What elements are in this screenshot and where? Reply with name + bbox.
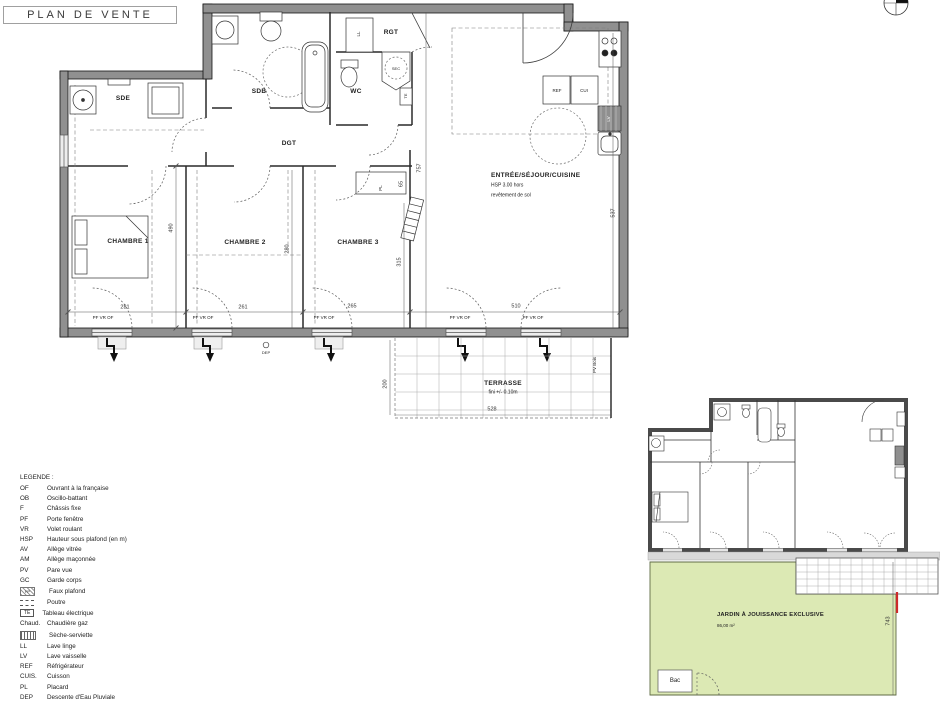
radiator-icon (20, 631, 36, 640)
sejour-note-1: HSP 3.00 hors (491, 184, 523, 189)
dim-528: 528 (487, 407, 496, 413)
cooktop-label: CUI (580, 89, 588, 94)
room-label-chambre1: CHAMBRE 1 (107, 239, 148, 246)
faux-plafond-hatch-icon: FP (20, 587, 35, 596)
room-label-dgt: DGT (282, 141, 297, 148)
room-label-chambre2: CHAMBRE 2 (224, 240, 265, 247)
closet-label: PL (379, 185, 384, 191)
dim-490: 490 (169, 223, 175, 232)
terrasse (395, 338, 611, 418)
room-label-wc: WC (350, 89, 361, 96)
dim-65: 65 (399, 181, 405, 187)
legend-item-poutre: Poutre (20, 599, 190, 606)
legend-item-pf: PF Porte fenêtre (20, 516, 190, 523)
jardin (650, 558, 938, 695)
title-box: PLAN DE VENTE (3, 6, 177, 24)
dep-label: DEP (262, 351, 270, 355)
legend-item-te: TE Tableau électrique (20, 609, 190, 617)
legend-item-av: AV Allège vitrée (20, 546, 190, 553)
legend-item-f: F Châssis fixe (20, 505, 190, 512)
jardin-area: 86,00 m² (717, 624, 735, 629)
room-label-sdb: SDB (252, 89, 267, 96)
plan-de-vente-sheet: PLAN DE VENTE SDE SDB WC RGT DGT CHAMBRE… (0, 0, 940, 705)
window-label-1: PF VR OF (93, 316, 114, 321)
jardin-title: JARDIN À JOUISSANCE EXCLUSIVE (717, 613, 824, 619)
bed (72, 216, 148, 278)
dim-757: 757 (417, 163, 423, 172)
legend-item-pv: PV Pare vue (20, 567, 190, 574)
dim-315: 315 (397, 257, 403, 266)
legend-item-cuis: CUIS. Cuisson (20, 673, 190, 680)
legend-item-am: AM Allège maçonnée (20, 556, 190, 563)
room-label-sejour: ENTRÉE/SÉJOUR/CUISINE (491, 173, 580, 180)
legend-title: LEGENDE : (20, 474, 190, 481)
sejour-note-2: revêtement de sol (491, 194, 531, 199)
electric-panel-label: TE (404, 93, 408, 98)
dim-265: 265 (347, 304, 356, 310)
dim-537: 537 (611, 208, 617, 217)
terrasse-label: TERRASSE (484, 381, 522, 388)
legend-item-vr: VR Volet roulant (20, 526, 190, 533)
dim-510: 510 (511, 304, 520, 310)
washer-label: LL (357, 31, 362, 36)
north-symbol (884, 0, 908, 15)
overview-plan (649, 400, 906, 550)
poutre-dashed-icon (20, 600, 34, 606)
legend-item-ll: LL Lave linge (20, 643, 190, 650)
dim-261: 261 (238, 305, 247, 311)
legend-item-fp: FP Faux plafond (20, 587, 190, 596)
dim-281: 281 (120, 305, 129, 311)
legend-item-chaud: Chaud. Chaudière gaz (20, 620, 190, 627)
room-label-rgt: RGT (384, 30, 399, 37)
window-label-5: PF VR OF (523, 316, 544, 321)
legend-item-pl: PL Placard (20, 684, 190, 691)
room-label-chambre3: CHAMBRE 3 (337, 240, 378, 247)
towel-radiator (401, 197, 424, 241)
pv-bois-label: PV Bois (593, 357, 598, 373)
door-stoops (98, 337, 343, 349)
entry-door (412, 13, 573, 63)
legend-item-gc: GC Garde corps (20, 577, 190, 584)
window-label-4: PF VR OF (450, 316, 471, 321)
page-title: PLAN DE VENTE (27, 9, 153, 21)
main-walls (60, 4, 628, 337)
dim-280: 280 (285, 244, 291, 253)
dim-743: 743 (886, 616, 892, 625)
interior-walls (68, 12, 412, 328)
window-label-2: PF VR OF (193, 316, 214, 321)
dep-pipe-icon (263, 342, 269, 348)
step-arrowheads (110, 353, 551, 362)
legend-item-of: OF Ouvrant à la française (20, 485, 190, 492)
room-label-sde: SDE (116, 96, 130, 103)
legend-item-lv: LV Lave vaisselle (20, 653, 190, 660)
legend: LEGENDE : OF Ouvrant à la française OB O… (20, 474, 190, 705)
legend-item-ob: OB Oscillo-battant (20, 495, 190, 502)
fridge-label: REF (553, 89, 562, 94)
dryer-label: SEC (392, 67, 400, 71)
compost-label: Bac (670, 678, 680, 684)
legend-item-seche: Sèche-serviette (20, 631, 190, 640)
legend-item-hsp: HSP Hauteur sous plafond (en m) (20, 536, 190, 543)
legend-item-ref: REF Réfrigérateur (20, 663, 190, 670)
dim-200: 200 (383, 379, 389, 388)
dishwasher-label: LV (607, 116, 612, 121)
terrasse-note: fini +/- 0.10m (488, 391, 517, 396)
window-label-3: PF VR OF (314, 316, 335, 321)
legend-item-dep: DEP Descente d'Eau Pluviale (20, 694, 190, 701)
electric-panel-icon: TE (20, 609, 34, 617)
